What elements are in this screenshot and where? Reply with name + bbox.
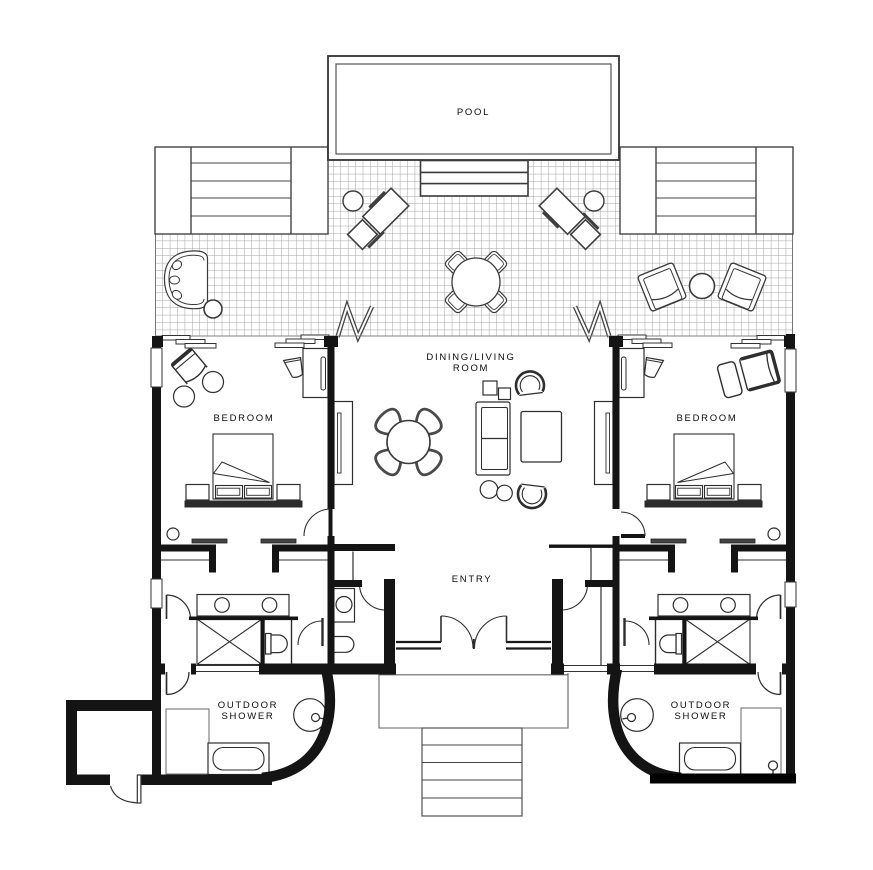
- svg-text:OUTDOOR: OUTDOOR: [671, 700, 731, 711]
- svg-text:SHOWER: SHOWER: [675, 711, 728, 722]
- svg-text:BEDROOM: BEDROOM: [677, 413, 738, 424]
- svg-text:ROOM: ROOM: [453, 363, 489, 374]
- svg-text:ENTRY: ENTRY: [452, 574, 493, 585]
- svg-text:DINING/LIVING: DINING/LIVING: [426, 352, 515, 363]
- svg-text:POOL: POOL: [457, 107, 490, 118]
- svg-text:BEDROOM: BEDROOM: [214, 413, 275, 424]
- svg-text:SHOWER: SHOWER: [222, 711, 275, 722]
- svg-text:OUTDOOR: OUTDOOR: [218, 700, 278, 711]
